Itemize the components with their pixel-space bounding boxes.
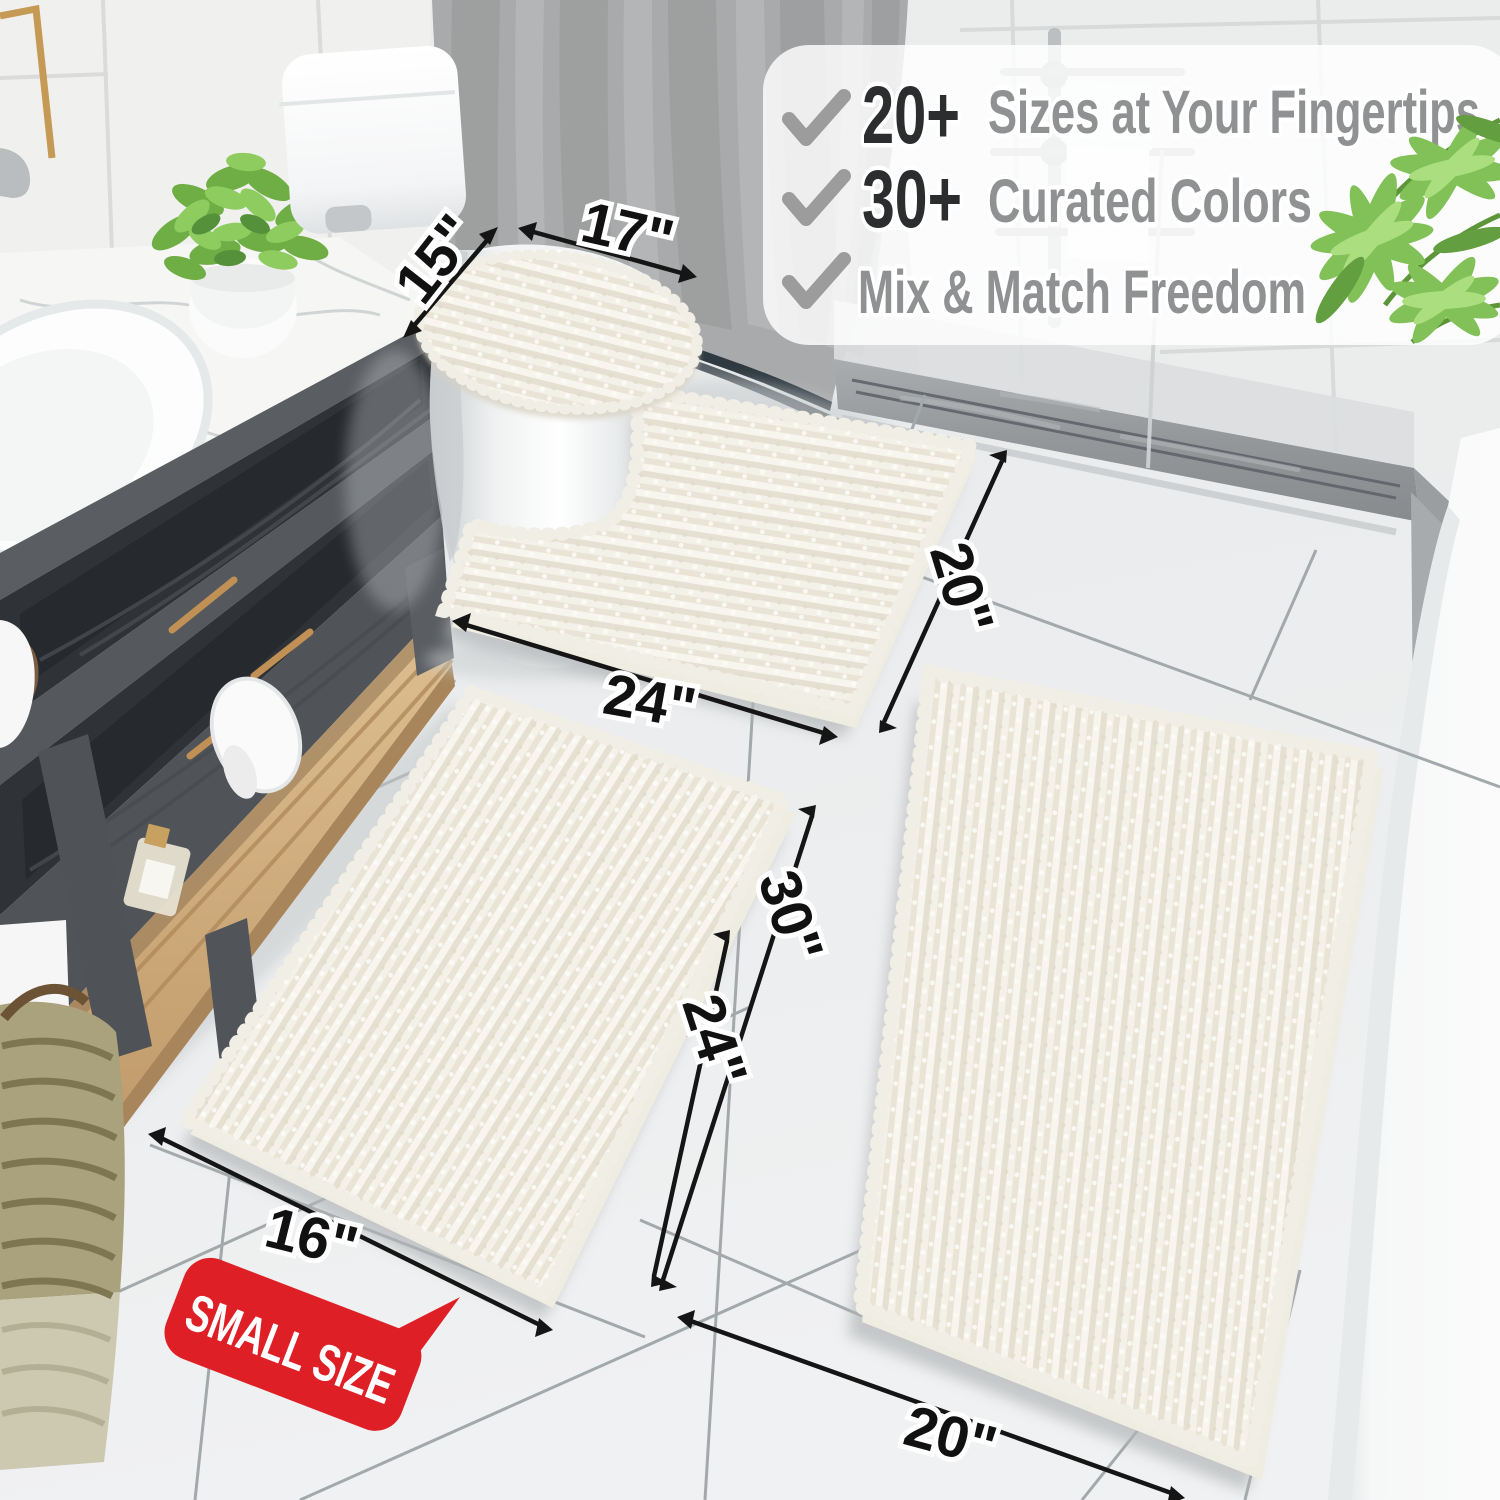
svg-text:30+: 30+: [862, 154, 962, 245]
svg-text:Curated Colors: Curated Colors: [988, 167, 1312, 235]
svg-text:20+: 20+: [862, 70, 960, 161]
svg-text:Sizes at Your Fingertips: Sizes at Your Fingertips: [988, 78, 1480, 146]
svg-text:Mix & Match Freedom: Mix & Match Freedom: [858, 258, 1306, 326]
